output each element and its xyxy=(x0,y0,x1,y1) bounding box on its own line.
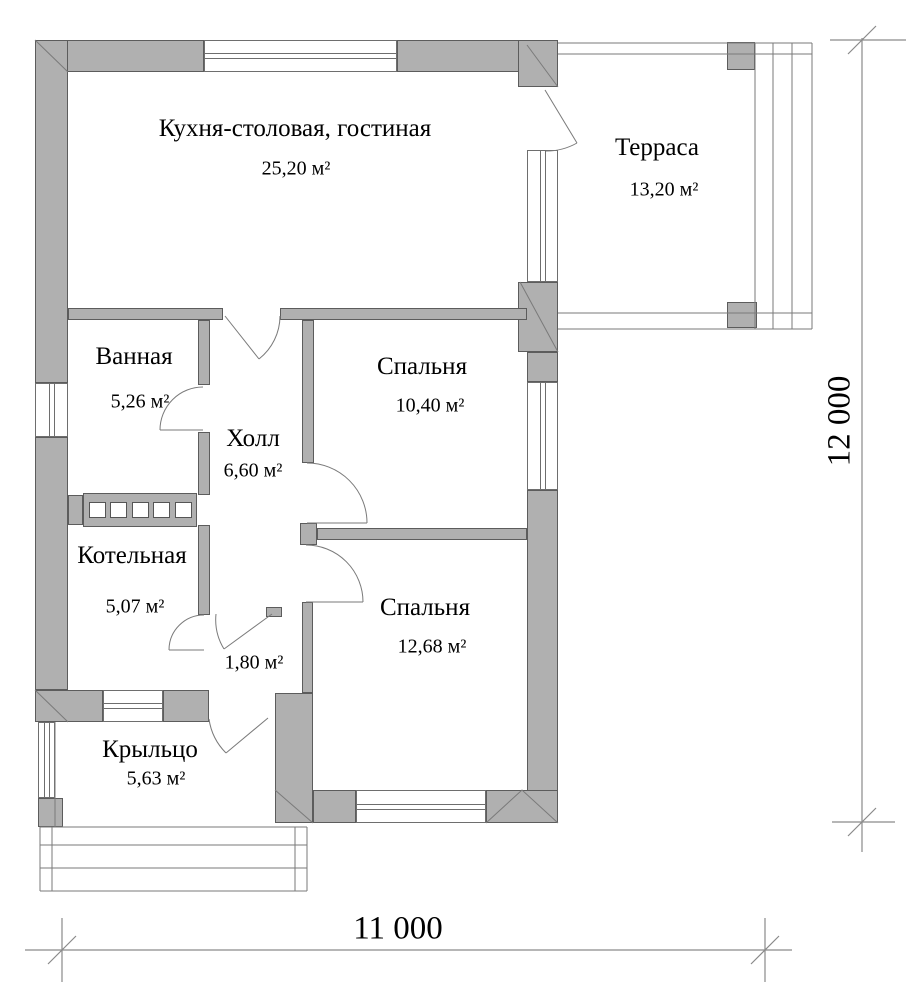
room-label-bedroom2: Спальня xyxy=(380,594,470,622)
wall xyxy=(275,693,313,823)
room-label-terrace: Терраса xyxy=(615,134,699,162)
door-arc xyxy=(216,614,224,649)
terrace-deck-line xyxy=(755,43,812,329)
window xyxy=(356,790,486,823)
vent-cell xyxy=(175,502,192,518)
room-area-bathroom: 5,26 м² xyxy=(111,391,170,414)
dimension-tick xyxy=(48,918,76,982)
dimension-tick xyxy=(830,26,906,54)
door-arc xyxy=(169,615,204,650)
wall xyxy=(317,528,527,540)
wall xyxy=(300,523,317,545)
terrace-pillar xyxy=(727,302,757,328)
room-area-porch: 5,63 м² xyxy=(127,768,186,791)
window xyxy=(103,690,163,722)
floor-plan: Кухня-столовая, гостиная 25,20 м² Террас… xyxy=(0,0,911,1000)
room-area-kitchen: 25,20 м² xyxy=(262,158,331,181)
wall xyxy=(35,690,103,722)
vent-cell xyxy=(153,502,170,518)
wall xyxy=(35,437,68,690)
room-area-hall: 6,60 м² xyxy=(224,460,283,483)
room-area-terrace: 13,20 м² xyxy=(630,179,699,202)
wall xyxy=(527,352,558,382)
door-leaf xyxy=(224,614,272,649)
room-label-bedroom1: Спальня xyxy=(377,353,467,381)
room-label-bathroom: Ванная xyxy=(95,343,172,371)
vent-block xyxy=(83,493,197,527)
room-area-entry: 1,80 м² xyxy=(225,652,284,675)
wall xyxy=(68,308,223,320)
window xyxy=(204,40,397,72)
window xyxy=(35,383,68,437)
door-leaf xyxy=(225,316,259,359)
room-label-boiler: Котельная xyxy=(77,542,186,570)
door-leaf xyxy=(545,90,577,143)
dimension-tick xyxy=(832,808,895,836)
room-area-boiler: 5,07 м² xyxy=(106,596,165,619)
terrace-rail xyxy=(558,313,812,329)
wall xyxy=(302,602,313,693)
wall xyxy=(302,320,314,463)
room-label-hall: Холл xyxy=(226,425,280,453)
wall xyxy=(68,495,83,525)
door-arc xyxy=(209,719,226,753)
wall xyxy=(198,525,210,615)
wall xyxy=(518,40,558,87)
room-label-kitchen: Кухня-столовая, гостиная xyxy=(159,115,432,143)
wall xyxy=(280,308,527,320)
wall xyxy=(35,40,68,383)
wall xyxy=(266,607,282,617)
terrace-rail xyxy=(558,43,812,54)
wall xyxy=(486,790,558,823)
terrace-pillar xyxy=(727,42,755,70)
porch-steps xyxy=(40,827,307,891)
wall xyxy=(198,320,210,385)
door-arc xyxy=(259,316,280,359)
door-arc xyxy=(306,545,363,602)
window xyxy=(38,722,55,798)
dimension-tick xyxy=(751,918,779,982)
window xyxy=(527,150,558,282)
vent-cell xyxy=(110,502,127,518)
wall xyxy=(163,690,209,722)
porch-steps xyxy=(40,827,307,891)
door-leaf xyxy=(226,718,268,753)
wall xyxy=(397,40,527,72)
vent-cell xyxy=(89,502,106,518)
room-area-bedroom1: 10,40 м² xyxy=(396,395,465,418)
wall xyxy=(198,432,210,495)
wall xyxy=(38,798,63,827)
room-area-bedroom2: 12,68 м² xyxy=(398,636,467,659)
room-label-porch: Крыльцо xyxy=(102,736,198,764)
wall xyxy=(313,790,356,823)
dimension-width-label: 11 000 xyxy=(353,911,443,948)
door-arc xyxy=(307,463,367,523)
dimension-height-label: 12 000 xyxy=(822,376,859,467)
vent-cell xyxy=(132,502,149,518)
wall xyxy=(527,490,558,792)
window xyxy=(527,382,558,490)
